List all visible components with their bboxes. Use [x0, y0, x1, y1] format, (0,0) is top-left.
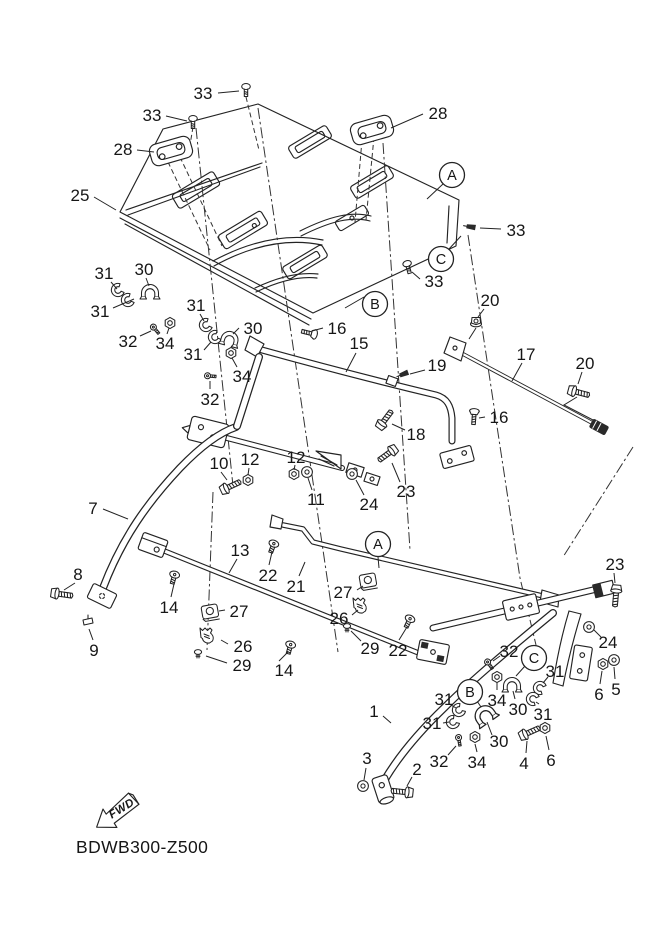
part-number-18: 18: [407, 425, 426, 444]
bar13-bracket: [416, 639, 449, 664]
leader-line: [614, 667, 615, 679]
serrated-clamp-icon: [200, 628, 213, 643]
part-number-31: 31: [91, 302, 110, 321]
clamp-icon: [502, 678, 522, 693]
part-number-31: 31: [534, 705, 553, 724]
push-rivet-icon: [194, 650, 201, 658]
part-number-31: 31: [546, 662, 565, 681]
clamp-icon: [218, 329, 241, 348]
leader-line: [512, 363, 522, 381]
leader-line: [206, 656, 227, 663]
view-callout-C: C: [436, 252, 446, 268]
part-number-12: 12: [287, 448, 306, 467]
part-number-32: 32: [430, 752, 449, 771]
leader-line: [480, 228, 501, 229]
leader-line: [94, 197, 116, 210]
part-number-32: 32: [201, 390, 220, 409]
part-number-15: 15: [350, 334, 369, 353]
leader-line: [279, 652, 288, 661]
small-screw-icon: [204, 373, 216, 380]
leader-line: [221, 640, 228, 644]
washer-icon: [302, 467, 313, 478]
parts-diagram-page: FWD BDWB300-Z500 3333282528A33C33B201615…: [0, 0, 661, 935]
leader-line: [269, 552, 272, 565]
washer-icon: [609, 655, 620, 666]
hex-nut-icon: [492, 671, 502, 682]
leader-line: [171, 584, 174, 597]
part-number-30: 30: [135, 260, 154, 279]
hex-nut-icon: [226, 347, 236, 358]
leader-line: [600, 671, 602, 684]
leader-line: [103, 509, 128, 519]
wedge-clip-icon: [463, 223, 476, 231]
hex-nut-icon: [598, 658, 608, 669]
hex-nut-icon: [470, 731, 480, 742]
part-number-23: 23: [397, 482, 416, 501]
leader-line: [356, 480, 364, 495]
part-number-16: 16: [490, 408, 509, 427]
part-number-22: 22: [259, 566, 278, 585]
serrated-clamp-icon: [353, 598, 366, 613]
hex-nut-icon: [165, 317, 175, 328]
leader-line: [233, 328, 239, 334]
leader-line: [399, 627, 407, 640]
hex-bolt-icon: [219, 477, 244, 496]
part-number-5: 5: [611, 680, 620, 699]
bar13-clevis: [138, 532, 169, 558]
part-number-7: 7: [88, 499, 97, 518]
leader-line: [392, 463, 400, 482]
leader-line: [204, 342, 211, 350]
leader-line: [475, 744, 477, 752]
part-number-27: 27: [230, 602, 249, 621]
leader-line: [219, 610, 225, 611]
part-number-34: 34: [488, 691, 507, 710]
part-number-22: 22: [389, 641, 408, 660]
part-number-13: 13: [231, 541, 250, 560]
part-number-32: 32: [119, 332, 138, 351]
leader-line: [352, 610, 358, 615]
part-number-16: 16: [328, 319, 347, 338]
part-number-27: 27: [334, 583, 353, 602]
part-number-29: 29: [233, 656, 252, 675]
part-number-26: 26: [330, 609, 349, 628]
hex-bolt-icon: [609, 585, 622, 608]
view-callout-A: A: [373, 537, 383, 553]
leader-line: [546, 736, 549, 750]
leader-line: [345, 297, 364, 308]
part-number-33: 33: [194, 84, 213, 103]
part-number-33: 33: [425, 272, 444, 291]
hex-bolt-icon: [374, 407, 396, 431]
leader-line: [346, 353, 356, 372]
part-number-6: 6: [546, 751, 555, 770]
part-number-3: 3: [362, 749, 371, 768]
small-screw-icon: [455, 734, 463, 746]
part-number-19: 19: [428, 356, 447, 375]
part-number-24: 24: [360, 495, 379, 514]
part-number-34: 34: [468, 753, 487, 772]
part-number-28: 28: [429, 104, 448, 123]
part-number-10: 10: [210, 454, 229, 473]
hex-nut-icon: [243, 474, 253, 485]
roof-bracket-right: [349, 114, 395, 147]
fwd-arrow: FWD: [90, 792, 143, 837]
part-number-26: 26: [234, 637, 253, 656]
part-number-31: 31: [184, 345, 203, 364]
roof-panel: [120, 104, 459, 325]
leader-line: [308, 478, 312, 490]
leader-line: [448, 746, 456, 755]
leader-line: [526, 741, 527, 753]
part-number-28: 28: [114, 140, 133, 159]
part-number-31: 31: [95, 264, 114, 283]
leader-line: [407, 777, 412, 786]
rubber-mount-icon: [359, 573, 377, 591]
hex-nut-icon: [540, 722, 550, 733]
hex-bolt-icon: [50, 587, 73, 601]
part-number-20: 20: [481, 291, 500, 310]
tube7-foot: [87, 583, 117, 609]
flat-screw-icon: [301, 327, 319, 340]
pan-screw-down-icon: [167, 570, 180, 585]
leader-line: [578, 372, 582, 384]
foot-clip-icon: [83, 615, 93, 625]
washer-icon: [358, 781, 369, 792]
view-callout-B: B: [370, 297, 380, 313]
leader-line: [536, 702, 539, 704]
part-number-33: 33: [143, 106, 162, 125]
part-number-4: 4: [519, 754, 528, 773]
leader-line: [166, 116, 187, 121]
pan-screw-down-icon: [402, 614, 417, 630]
diagram-code: BDWB300-Z500: [76, 837, 208, 857]
leader-line: [513, 691, 515, 699]
part-number-33: 33: [507, 221, 526, 240]
leader-line: [140, 331, 151, 336]
part-number-31: 31: [423, 714, 442, 733]
part-number-14: 14: [160, 598, 179, 617]
part-number-32: 32: [500, 642, 519, 661]
part-number-30: 30: [490, 732, 509, 751]
leader-line: [410, 370, 425, 374]
leader-line: [479, 417, 485, 418]
part-number-9: 9: [89, 641, 98, 660]
hex-nut-icon: [289, 468, 299, 479]
leader-line: [221, 472, 227, 480]
leader-line: [232, 358, 237, 367]
part-number-17: 17: [517, 345, 536, 364]
pan-screw-down-icon: [266, 539, 280, 555]
part-number-2: 2: [412, 760, 421, 779]
clamp-icon: [140, 285, 160, 300]
part-number-30: 30: [509, 700, 528, 719]
part-number-31: 31: [435, 690, 454, 709]
leader-line: [364, 768, 366, 780]
view-callout-C: C: [529, 651, 539, 667]
exploded-parts-diagram: FWD BDWB300-Z500 3333282528A33C33B201615…: [0, 0, 661, 935]
hex-bolt-icon: [567, 384, 591, 400]
part-number-1: 1: [369, 702, 378, 721]
washer-icon: [584, 622, 595, 633]
leader-line: [614, 573, 615, 583]
part-number-30: 30: [244, 319, 263, 338]
pan-screw-icon: [242, 84, 251, 97]
view-callout-B: B: [465, 685, 475, 701]
view-callout-A: A: [447, 168, 457, 184]
part-number-14: 14: [275, 661, 294, 680]
part-number-34: 34: [156, 334, 175, 353]
rubber-mount-icon: [201, 604, 219, 622]
leader-line: [478, 309, 484, 317]
part-number-20: 20: [576, 354, 595, 373]
part-number-8: 8: [73, 565, 82, 584]
leader-line: [299, 562, 305, 576]
leader-line: [64, 583, 75, 590]
part-number-34: 34: [233, 367, 252, 386]
part-number-31: 31: [187, 296, 206, 315]
leader-line: [412, 272, 420, 279]
pan-screw-down-icon: [283, 640, 296, 655]
flat-screw-icon: [469, 408, 480, 425]
rail-bracket: [502, 593, 540, 620]
tube15-foot: [439, 445, 474, 469]
part-number-29: 29: [361, 639, 380, 658]
washer-icon: [347, 469, 358, 480]
leader-line: [248, 468, 249, 475]
part-number-23: 23: [606, 555, 625, 574]
leader-line: [391, 114, 423, 128]
leader-line: [516, 666, 525, 676]
leader-line: [383, 716, 391, 723]
flange-nut-icon: [471, 318, 482, 327]
leader-line: [351, 631, 361, 641]
leader-line: [392, 424, 405, 430]
frame-structure: [87, 328, 615, 806]
bushing-icon: [197, 317, 213, 334]
hex-bolt-icon: [375, 443, 399, 465]
part-number-25: 25: [71, 186, 90, 205]
part-number-6: 6: [594, 685, 603, 704]
leader-line: [89, 629, 93, 640]
pillar-plate: [569, 645, 592, 681]
part-number-11: 11: [307, 490, 325, 509]
part-number-12: 12: [241, 450, 260, 469]
bar21-flare: [270, 515, 283, 529]
part-number-24: 24: [599, 633, 618, 652]
part-number-21: 21: [287, 577, 306, 596]
hex-bolt-icon: [518, 723, 543, 742]
leader-line: [229, 559, 237, 573]
leader-line: [218, 91, 239, 93]
